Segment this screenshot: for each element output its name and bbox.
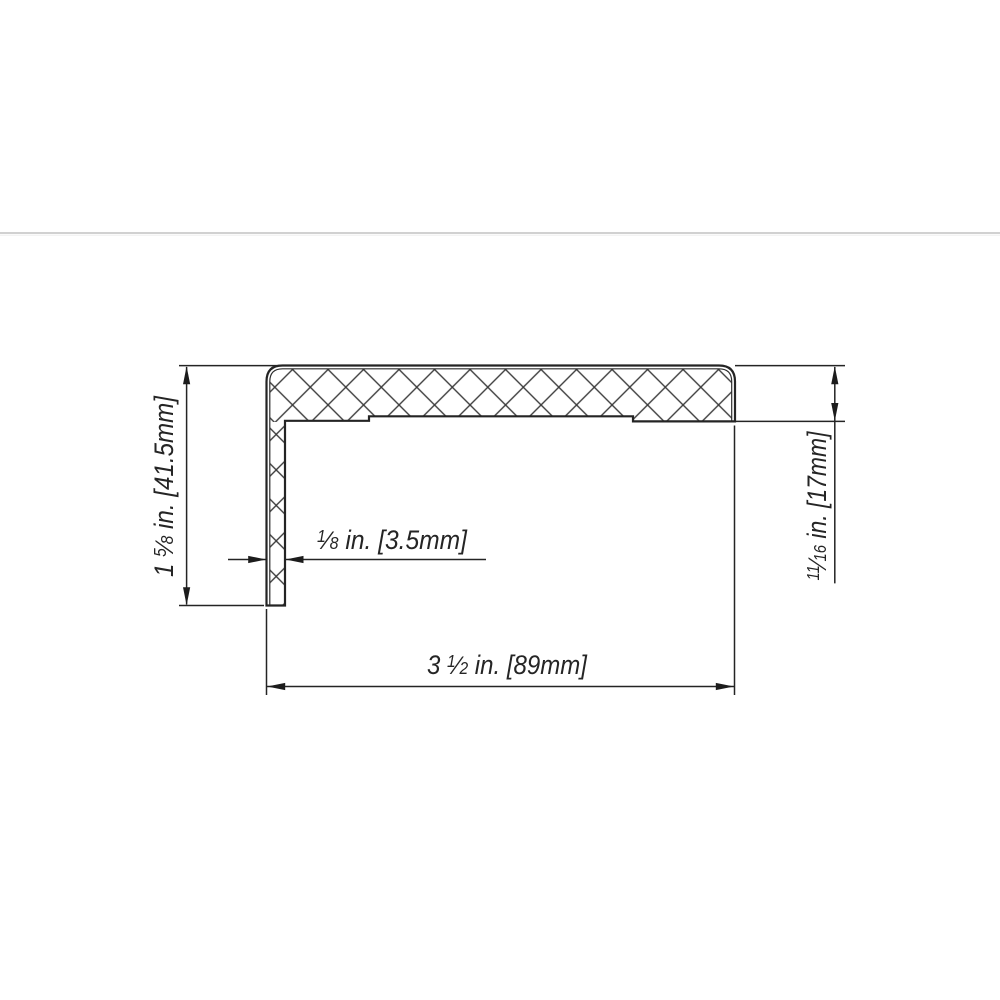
- svg-text:1⁄8 in. [3.5mm]: 1⁄8 in. [3.5mm]: [317, 525, 468, 555]
